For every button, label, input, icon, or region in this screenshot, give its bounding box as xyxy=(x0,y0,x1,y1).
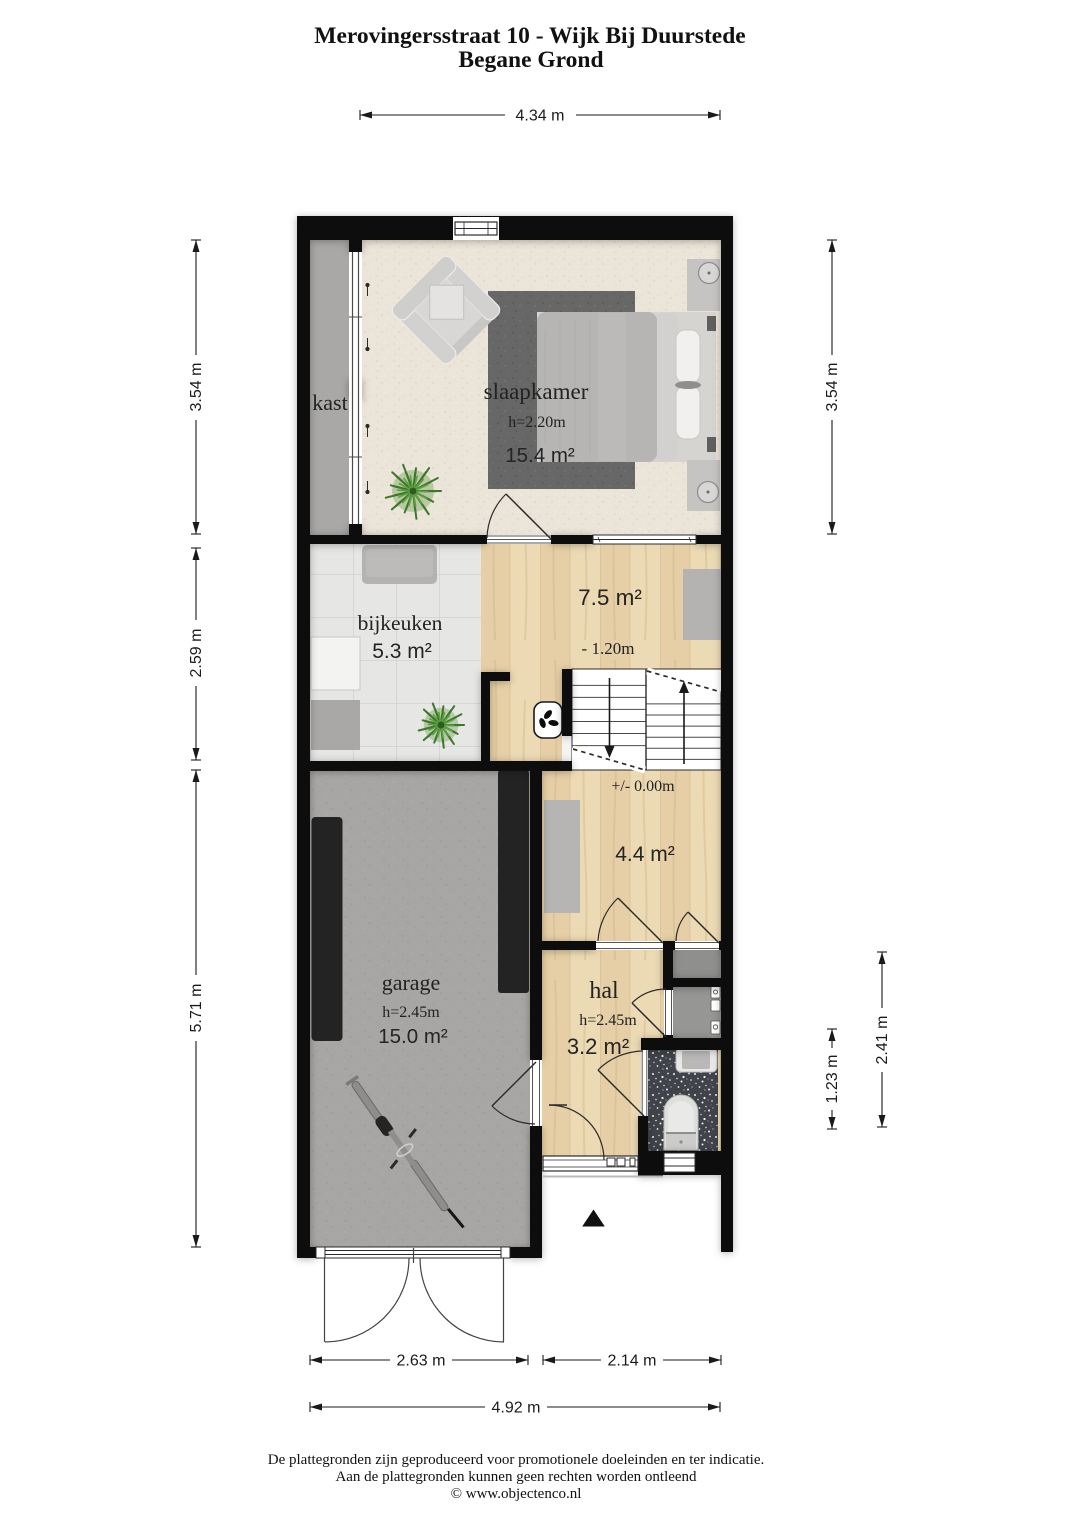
svg-text:4.34 m: 4.34 m xyxy=(516,108,565,125)
svg-text:1.23 m: 1.23 m xyxy=(824,1055,841,1104)
svg-text:7.5 m²: 7.5 m² xyxy=(578,585,642,610)
svg-text:4.92 m: 4.92 m xyxy=(492,1400,541,1417)
svg-text:Begane Grond: Begane Grond xyxy=(458,47,603,73)
svg-text:4.4 m²: 4.4 m² xyxy=(615,843,675,866)
svg-text:3.54 m: 3.54 m xyxy=(188,363,205,412)
svg-text:5.3 m²: 5.3 m² xyxy=(372,640,432,663)
svg-text:3.54 m: 3.54 m xyxy=(824,363,841,412)
svg-text:hal: hal xyxy=(589,978,619,1004)
svg-text:2.59 m: 2.59 m xyxy=(188,629,205,678)
svg-text:h=2.45m: h=2.45m xyxy=(382,1004,440,1021)
svg-text:bijkeuken: bijkeuken xyxy=(358,611,443,635)
svg-text:Merovingersstraat 10 - Wijk Bi: Merovingersstraat 10 - Wijk Bij Duursted… xyxy=(314,23,745,49)
svg-text:garage: garage xyxy=(382,970,441,995)
svg-text:- 1.20m: - 1.20m xyxy=(582,639,635,658)
svg-text:De plattegronden zijn geproduc: De plattegronden zijn geproduceerd voor … xyxy=(268,1452,764,1468)
svg-text:slaapkamer: slaapkamer xyxy=(484,379,589,404)
svg-text:h=2.45m: h=2.45m xyxy=(579,1012,637,1029)
svg-text:Aan de plattegronden kunnen ge: Aan de plattegronden kunnen geen rechten… xyxy=(335,1469,697,1485)
svg-text:15.0 m²: 15.0 m² xyxy=(378,1025,448,1048)
svg-text:3.2 m²: 3.2 m² xyxy=(567,1034,629,1059)
svg-text:5.71 m: 5.71 m xyxy=(188,984,205,1033)
svg-text:2.41 m: 2.41 m xyxy=(874,1016,891,1065)
svg-text:kast: kast xyxy=(312,390,347,415)
svg-text:h=2.20m: h=2.20m xyxy=(508,414,566,431)
svg-text:15.4 m²: 15.4 m² xyxy=(505,444,575,467)
svg-text:+/- 0.00m: +/- 0.00m xyxy=(611,778,675,795)
svg-text:© www.objectenco.nl: © www.objectenco.nl xyxy=(451,1486,582,1502)
svg-text:2.14 m: 2.14 m xyxy=(608,1353,657,1370)
svg-text:2.63 m: 2.63 m xyxy=(397,1353,446,1370)
